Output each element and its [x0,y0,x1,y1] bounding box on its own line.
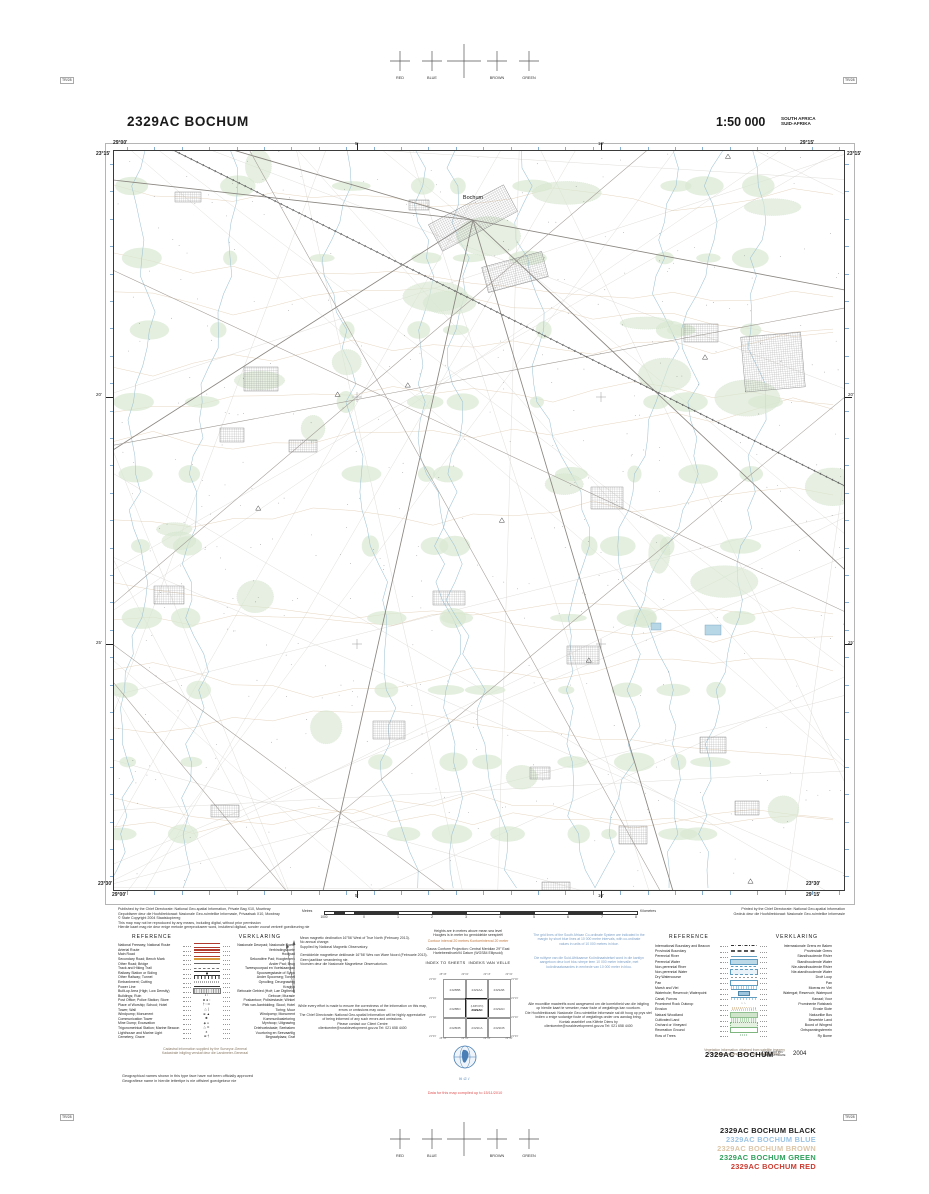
country-line-af: SUID-AFRIKA [781,121,816,126]
legend-label-en: Windpump; Monument [118,1012,182,1016]
grid-tick [845,465,849,466]
grid-tick [182,891,183,895]
scale-bar-number: 3 [465,915,467,919]
grid-tick [110,383,114,384]
grid-tick [110,191,114,192]
legend-row: Row of Trees• • • •Ry Bome [655,1033,832,1038]
grid-tick [110,328,114,329]
cadastral-note: Cadastral information supplied by the Su… [140,1047,270,1055]
grid-tick [845,712,849,713]
scale-bar-number: 0 [363,915,365,919]
scale-bar-number: 6 [567,915,569,919]
legend-label-af: Bewerkte Land [768,1018,832,1022]
scale-bar-segment [466,911,502,915]
grid-tick [593,147,594,151]
grid-tick [845,493,849,494]
grid-tick [845,219,849,220]
grid-tick [538,147,539,151]
grid-tick [237,891,238,895]
grid-tick [845,274,849,275]
grid-tick [511,891,512,895]
legend-label-en: Power Line [118,985,182,989]
legend-row: Waterhole; Reservoir; WaterpointWatergat… [655,991,832,996]
legend-label-af: Moeras en Vlei [768,986,832,990]
grid-tick [110,630,114,631]
text-line: Hoogtes is in meter bo gemiddelde seespi… [418,933,518,937]
legend-label-en: Non-perennial Water [655,970,719,974]
trees-symbol-icon: • • • • [729,1034,759,1037]
grid-tick [702,147,703,151]
legend-left: REFERENCE VERKLARING National Freeway; N… [118,934,295,1039]
legend-label-en: Non-perennial River [655,965,719,969]
index-lat-label: 23°45' [511,1035,518,1038]
legend-label-en: Built-up Area (High; Low Density) [118,989,182,993]
legend-label-af: Watergat; Reservoir; Waterpunt [768,991,832,995]
graticule-tick [601,891,602,898]
grid-tick [757,891,758,895]
legend-label-en: Railway Station or Siding [118,971,182,975]
grid-tick [483,147,484,151]
legend-label-en: Post Office; Police Station; Store [118,998,182,1002]
graticule-tick [357,891,358,898]
woodland-symbol-icon [729,1012,759,1018]
grid-tick [845,411,849,412]
grid-tick [110,849,114,850]
scale-bar-segment [364,911,400,915]
grid-tick [110,767,114,768]
svg-text:Bochum: Bochum [463,195,484,201]
grid-tick [264,891,265,895]
legend-label-af: Mynhoop; Uitgrawing [231,1021,295,1025]
legend-label-en: Dry Watercourse [655,975,719,979]
scale-bar-number: 1000 [320,915,327,919]
grid-tick [845,328,849,329]
country-label: SOUTH AFRICA SUID-AFRIKA [781,116,816,127]
grid-tick [845,164,849,165]
grid-tick [110,794,114,795]
index-title: INDEX TO SHEETS INDEKS VAN VELLE [410,961,526,965]
index-cell-current: (LIMPOPO)2329AC [465,998,489,1019]
rail-station-symbol-icon [192,971,222,975]
legend-label-en: Main Road [118,952,182,956]
legend-label-af: Driehoekstasie; Seebaken [231,1026,295,1030]
text-line: Hartebeesthoek94 Datum (WGS84 Ellipsoid) [410,951,526,955]
contour-interval-note: Contour interval 20 metres Kontoerinterv… [403,939,533,943]
grid-tick [110,876,114,877]
grid-tick [785,147,786,151]
errors-note-af: Alle moontlike maatreëls word aangewend … [506,1002,671,1028]
press-mark-bottom-right: TR/28 [843,1114,857,1121]
text-line: aangetoon deur kort blou strepe teen 10 … [520,960,658,964]
legend-label-af: Natuurlike Bos [768,1013,832,1017]
scale-bar-unit-label: Metres [302,909,312,913]
grid-tick [845,849,849,850]
index-lat-label: 23°45' [429,1035,436,1038]
legend-label-en: Lighthouse and Marine Light [118,1031,182,1035]
legend-label-en: Buildings; Ruin [118,994,182,998]
corner-lat-top-left: 23°15' [96,151,110,157]
corner-lat-bottom-left: 23°30' [98,881,112,887]
registration-colour-label: GREEN [522,1154,536,1158]
legend-row: Other Railway; TunnelAnder Spoorweg; Ton… [118,975,295,980]
registration-colour-label: RED [396,76,404,80]
grid-tick [182,147,183,151]
grid-tick [319,891,320,895]
legend-row: Main RoadHoofpad [118,952,295,957]
legend-label-af: Toring; Muur [231,1008,295,1012]
graticule-tick [845,644,852,645]
marsh-symbol-icon [729,986,759,990]
legend-label-af: Boord of Wingerd [768,1023,832,1027]
legend-label-en: Marsh and Vlei [655,986,719,990]
text-line: margin by short blue lines at 10 000 met… [520,937,658,941]
prov-boundary-symbol-icon [729,950,759,951]
legend-row: Cemetery; Grave⊞ †Begraafplaas; Graf [118,1035,295,1040]
index-lon-label: 28°45' [439,973,446,976]
grid-tick [593,891,594,895]
grid-tick [483,891,484,895]
grid-tick [110,274,114,275]
registration-colour-label: BLUE [427,1154,437,1158]
legend-label-en: Perennial Water [655,960,719,964]
legend-label-af: Nie-standhoudende Water [768,970,832,974]
grid-tick [346,891,347,895]
text-line: Geografiese name in hierdie lettertipe i… [122,1079,253,1084]
index-lon-label: 29°30' [505,973,512,976]
grid-tick [845,301,849,302]
grid-tick [845,602,849,603]
index-cell: 2329AA [465,979,489,1000]
map-canvas: Bochum [113,150,845,891]
projection-note: Gauss Conform Projection: Central Meridi… [410,947,526,956]
tower-symbol-icon: △ | [192,1008,222,1011]
grid-tick [374,891,375,895]
index-lon-label: 29°00' [461,1037,468,1040]
river-symbol-icon [729,956,759,957]
power-symbol-icon [192,986,222,987]
grid-tick [845,657,849,658]
grid-tick [374,147,375,151]
legend-right: REFERENCE VERKLARING International Bound… [655,934,832,1038]
index-lat-label: 23°15' [429,997,436,1000]
grid-tick [648,147,649,151]
legend-right-title-af: VERKLARING [776,934,818,940]
colour-plate-label: 2329AC BOCHUM GREEN [600,1153,816,1162]
np-water-symbol-icon [729,969,759,975]
legend-label-en: Canal; Furrow [655,997,719,1001]
colour-plate-label: 2329AC BOCHUM BROWN [600,1144,816,1153]
grid-tick [110,465,114,466]
grid-tick [648,891,649,895]
scale-label: 1:50 000 [716,115,765,129]
grid-tick [620,147,621,151]
grid-tick [845,767,849,768]
grid-tick [319,147,320,151]
index-lat-label: 23°15' [511,997,518,1000]
legend-left-title-en: REFERENCE [132,934,172,940]
legend-label-af: Droë Loop [768,975,832,979]
other-road-symbol-icon [192,963,222,964]
text-line: Gedruk deur die Hoofdirektoraat: Nasiona… [600,912,845,917]
scale-bar-number: 5 [533,915,535,919]
legend-label-en: Cultivated Land [655,1018,719,1022]
edge-tick-left-25: 25' [96,640,102,645]
grid-tick [845,383,849,384]
legend-label-af: Ry Bome [768,1034,832,1038]
registration-colour-label: BLUE [427,76,437,80]
legend-row: Perennial WaterStandhoudende Water [655,959,832,964]
grid-tick [110,438,114,439]
grid-tick [237,147,238,151]
grid-tick [110,685,114,686]
grid-tick [110,493,114,494]
grid-tick [565,891,566,895]
graticule-tick [106,397,113,398]
legend-label-af: Ontspanningsterrein [768,1028,832,1032]
legend-label-en: Other Road; Bridge [118,962,182,966]
errors-note-en: While every effort is made to ensure the… [290,1004,435,1030]
grid-tick [675,147,676,151]
grid-tick [110,822,114,823]
grid-tick [565,147,566,151]
secondary-road-symbol-icon [192,958,222,960]
legend-label-en: Orchard or Vineyard [655,1023,719,1027]
text-line: Kadastrale inligting verskaf deur die La… [140,1051,270,1055]
index-lat-label: 23°00' [429,978,436,981]
declination-diagram [283,937,299,997]
grid-tick [209,891,210,895]
grid-tick [812,891,813,895]
graticule-tick [845,397,852,398]
grid-tick [110,657,114,658]
grid-tick [845,356,849,357]
graticule-tick [601,143,602,150]
grid-tick [110,548,114,549]
grid-tick [264,147,265,151]
rock-symbol-icon: ∴ ∴ [729,1002,759,1005]
logo-caption: NGI [450,1076,480,1081]
globe-icon [452,1044,478,1070]
grid-tick [110,739,114,740]
legend-label-en: Embankment; Cutting [118,980,182,984]
rail-symbol-icon [192,975,222,979]
legend-row: Natural WoodlandNatuurlike Bos [655,1012,832,1017]
legend-label-af: Vuurtoring en Seevaartlig [231,1031,295,1035]
scale-bar-segment [500,911,536,915]
freeway-symbol-icon [192,943,222,948]
compiled-note: Data for this map compiled up to 15/11/2… [380,1091,550,1095]
np-river-symbol-icon [729,966,759,967]
legend-label-af: Internasionale Grens en Baken [768,944,832,948]
footer-edition: THIRD EDITION DERDE UITGAWE [762,1051,786,1058]
text-line: values in units of 10 000 metres in blue… [520,942,658,946]
grid-tick [845,822,849,823]
index-lat-label: 23°00' [511,978,518,981]
grid-tick [110,164,114,165]
grid-tick [428,147,429,151]
grid-tick [110,356,114,357]
grid-tick [110,219,114,220]
intl-boundary-symbol-icon [729,945,759,947]
grid-tick [845,794,849,795]
grid-tick [538,891,539,895]
scale-bar-number: 1 [397,915,399,919]
legend-label-af: Erosie Slote [768,1007,832,1011]
track-symbol-icon [192,968,222,969]
grid-tick [845,520,849,521]
legend-label-af: Standhoudende Rivier [768,954,832,958]
grid-tick [110,246,114,247]
legend-label-en: Waterhole; Reservoir; Waterpoint [655,991,719,995]
legend-label-af: Pan [768,981,832,985]
canal-symbol-icon [729,997,759,1001]
index-lat-label: 23°30' [429,1016,436,1019]
map-sheet-page: TR/28 TR/28 TR/28 TR/28 REDBLUEBROWNGREE… [0,0,929,1194]
grid-tick [785,891,786,895]
legend-label-en: Provincial Boundary [655,949,719,953]
footer-year: 2004 [793,1051,806,1057]
grid-tick [730,147,731,151]
scale-bar-segment [398,911,434,915]
legend-label-en: Secondary Road; Bench Mark [118,957,182,961]
edge-tick-left-20: 20' [96,392,102,397]
legend-label-af: Standhoudende Water [768,960,832,964]
registration-colour-label: GREEN [522,76,536,80]
index-lon-label: 29°15' [483,973,490,976]
pan-symbol-icon [729,980,759,986]
grid-tick [839,891,840,895]
legend-label-en: Pan [655,981,719,985]
dry-symbol-icon [729,977,759,978]
legend-label-af: Windpomp; Monument [231,1012,295,1016]
grid-tick [456,891,457,895]
grid-tick [110,575,114,576]
printer-imprint: Printed by the Chief Directorate: Nation… [600,907,845,916]
grid-tick [346,147,347,151]
arterial-symbol-icon [192,949,222,951]
legend-label-af: Begraafplaas; Graf [231,1035,295,1039]
colour-plate-label: 2329AC BOCHUM BLACK [600,1126,816,1135]
grid-tick [154,891,155,895]
index-cell: 2329CA [465,1017,489,1038]
legend-label-en: Arterial Route [118,948,182,952]
legend-label-en: Natural Woodland [655,1013,719,1017]
legend-label-en: Tower; Wall [118,1008,182,1012]
legend-label-en: Cemetery; Grave [118,1035,182,1039]
press-mark-bottom-left: TR/28 [60,1114,74,1121]
grid-tick [511,147,512,151]
legend-label-af: Poskantoor; Polisiestasie; Winkel [231,998,295,1002]
grid-tick [428,891,429,895]
scale-bar-number: 4 [499,915,501,919]
grid-tick [845,438,849,439]
grid-tick [209,147,210,151]
legend-label-en: Perennial River [655,954,719,958]
legend-label-af: Provinsiale Grens [768,949,832,953]
grid-tick [110,712,114,713]
legend-label-af: Nie-standhoudende Rivier [768,965,832,969]
legend-label-en: Communication Tower [118,1017,182,1021]
comm-tower-symbol-icon: ✱ [192,1017,222,1020]
index-cell: 2328DB [443,1017,467,1038]
corner-lon-bottom-right: 29°15' [806,892,820,898]
legend-label-af: Prominente Rotsbank [768,1002,832,1006]
scale-bar-segment [534,911,570,915]
grid-tick [291,891,292,895]
legend-row: Non-perennial WaterNie-standhoudende Wat… [655,969,832,974]
grid-tick [845,575,849,576]
grid-tick [845,630,849,631]
grid-tick [110,301,114,302]
index-lon-label: 28°45' [439,1037,446,1040]
grid-tick [845,191,849,192]
grid-tick [127,891,128,895]
ngi-logo: NGI [450,1044,480,1081]
grid-note-en: The grid lines of the South African Co-o… [520,933,658,946]
text-line: koördinaatwaardes in eenhede van 10 000 … [520,965,658,969]
reservoir-symbol-icon [729,991,759,997]
registration-marks-bottom: REDBLUEBROWNGREEN [378,1122,558,1162]
grid-tick [291,147,292,151]
index-cell: 2328BB [443,979,467,1000]
registration-marks-top: REDBLUEBROWNGREEN [378,44,558,84]
graticule-tick [106,644,113,645]
grid-tick [127,147,128,151]
legend-label-en: Erosion [655,1007,719,1011]
cemetery-symbol-icon: ⊞ † [192,1035,222,1038]
legend-label-en: Place of Worship; School; Hotel [118,1003,182,1007]
legend-label-en: Track and Hiking Trail [118,966,182,970]
grid-tick [730,891,731,895]
corner-lon-top-left: 29°00' [113,140,127,146]
embankment-symbol-icon [192,981,222,984]
legend-label-af: Kommunikasietoring [231,1017,295,1021]
corner-lat-top-right: 23°15' [847,151,861,157]
corner-lon-bottom-left: 29°00' [112,892,126,898]
legend-label-en: National Freeway; National Route [118,943,182,947]
index-cell: 2328BD [443,998,467,1019]
grid-tick [812,147,813,151]
grid-tick [620,891,621,895]
heights-note: Heights are in metres above mean sea lev… [418,929,518,938]
legend-row: Railway Station or SidingSpoorwegstasie … [118,971,295,976]
index-cell: 2329AB [487,979,511,1000]
grid-tick [845,739,849,740]
grid-tick [456,147,457,151]
registration-colour-label: BROWN [490,1154,505,1158]
scale-bar-segment [568,911,604,915]
legend-label-en: Recreation Ground [655,1028,719,1032]
registration-colour-label: BROWN [490,76,505,80]
grid-tick [845,246,849,247]
water-symbol-icon [729,959,759,965]
legend-label-en: Mine Dump; Excavation [118,1021,182,1025]
legend-label-en: International Boundary and Beacon [655,944,719,948]
grid-tick [401,147,402,151]
scale-bar: 1000012345678MetresKilometres [300,906,650,922]
legend-label-en: Row of Trees [655,1034,719,1038]
grid-tick [702,891,703,895]
colour-plate-label: 2329AC BOCHUM BLUE [600,1135,816,1144]
grid-tick [845,685,849,686]
geographical-names-note: Geographical names shown in this type fa… [122,1074,253,1084]
colour-plate-labels: 2329AC BOCHUM BLACK2329AC BOCHUM BLUE232… [600,1126,816,1171]
grid-tick [154,147,155,151]
grid-tick [110,411,114,412]
registration-colour-label: RED [396,1154,404,1158]
text-line: clientcentre@ruraldevelopment.gov.za Tel… [506,1024,671,1028]
press-mark-top-right: TR/28 [843,77,857,84]
